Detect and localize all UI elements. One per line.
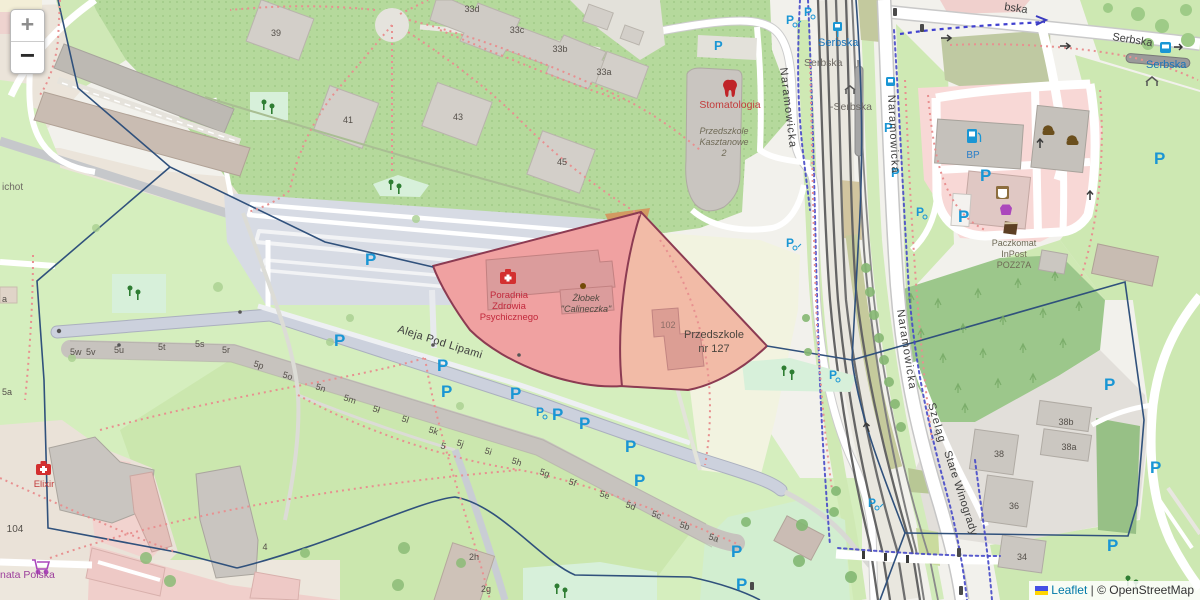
svg-text:38b: 38b <box>1058 417 1073 427</box>
svg-text:33b: 33b <box>552 44 567 54</box>
svg-text:P: P <box>980 166 991 185</box>
svg-text:P: P <box>1154 149 1165 168</box>
svg-text:5a: 5a <box>2 387 12 397</box>
svg-text:P: P <box>736 575 747 594</box>
svg-text:P: P <box>441 382 452 401</box>
svg-text:5w: 5w <box>70 347 82 357</box>
svg-text:P: P <box>731 542 742 561</box>
svg-text:P: P <box>625 437 636 456</box>
svg-text:Kasztanowe: Kasztanowe <box>699 137 748 147</box>
svg-text:33c: 33c <box>510 25 525 35</box>
svg-text:Przedszkole: Przedszkole <box>684 329 744 341</box>
svg-text:P: P <box>1104 375 1115 394</box>
svg-text:BP: BP <box>966 150 980 161</box>
svg-text:Psychicznego: Psychicznego <box>480 312 539 323</box>
svg-text:5s: 5s <box>195 339 205 349</box>
svg-text:POZ27A: POZ27A <box>997 260 1032 270</box>
svg-text:Zdrowia: Zdrowia <box>492 301 527 312</box>
svg-text:41: 41 <box>343 115 353 125</box>
svg-text:nata Polska: nata Polska <box>0 569 55 581</box>
svg-text:43: 43 <box>453 112 463 122</box>
svg-text:P: P <box>552 405 563 424</box>
svg-text:36: 36 <box>1009 501 1019 511</box>
svg-text:P: P <box>634 471 645 490</box>
svg-text:5t: 5t <box>158 342 166 352</box>
svg-text:P: P <box>1107 536 1118 555</box>
svg-text:nr 127: nr 127 <box>698 343 729 355</box>
svg-text:a: a <box>2 294 7 304</box>
svg-text:P: P <box>365 250 376 269</box>
svg-text:2h: 2h <box>469 552 479 562</box>
svg-text:P: P <box>714 38 723 53</box>
svg-text:Serbska: Serbska <box>818 37 859 49</box>
svg-text:InPost: InPost <box>1001 249 1027 259</box>
svg-text:45: 45 <box>557 157 567 167</box>
svg-text:P: P <box>334 331 345 350</box>
svg-text:Żłobek: Żłobek <box>571 293 600 303</box>
svg-text:5u: 5u <box>114 345 124 355</box>
svg-text:Serbska: Serbska <box>1146 59 1187 71</box>
svg-text:104: 104 <box>7 524 24 535</box>
svg-text:-Serbska: -Serbska <box>830 101 872 113</box>
svg-text:2: 2 <box>720 148 726 158</box>
svg-text:33a: 33a <box>596 67 611 77</box>
svg-text:P: P <box>510 384 521 403</box>
svg-text:33d: 33d <box>464 4 479 14</box>
svg-text:38: 38 <box>994 449 1004 459</box>
svg-text:P: P <box>437 356 448 375</box>
svg-text:P: P <box>1150 458 1161 477</box>
svg-text:102: 102 <box>660 320 675 330</box>
svg-text:34: 34 <box>1017 552 1027 562</box>
svg-text:Stomatologia: Stomatologia <box>699 99 760 111</box>
svg-text:"Calineczka": "Calineczka" <box>561 304 612 314</box>
svg-text:ichot: ichot <box>2 182 23 193</box>
svg-text:Elixir: Elixir <box>34 479 55 490</box>
svg-text:Paczkomat: Paczkomat <box>992 238 1037 248</box>
svg-text:P: P <box>958 207 969 226</box>
svg-text:Przedszkole: Przedszkole <box>699 126 748 136</box>
svg-text:5r: 5r <box>222 345 230 355</box>
svg-text:39: 39 <box>271 28 281 38</box>
svg-text:38a: 38a <box>1061 442 1076 452</box>
svg-text:5v: 5v <box>86 347 96 357</box>
svg-text:Poradnia: Poradnia <box>490 290 529 301</box>
svg-text:4: 4 <box>262 542 267 552</box>
svg-text:Serbska: Serbska <box>804 57 843 69</box>
svg-text:P: P <box>579 414 590 433</box>
svg-text:2g: 2g <box>481 584 491 594</box>
